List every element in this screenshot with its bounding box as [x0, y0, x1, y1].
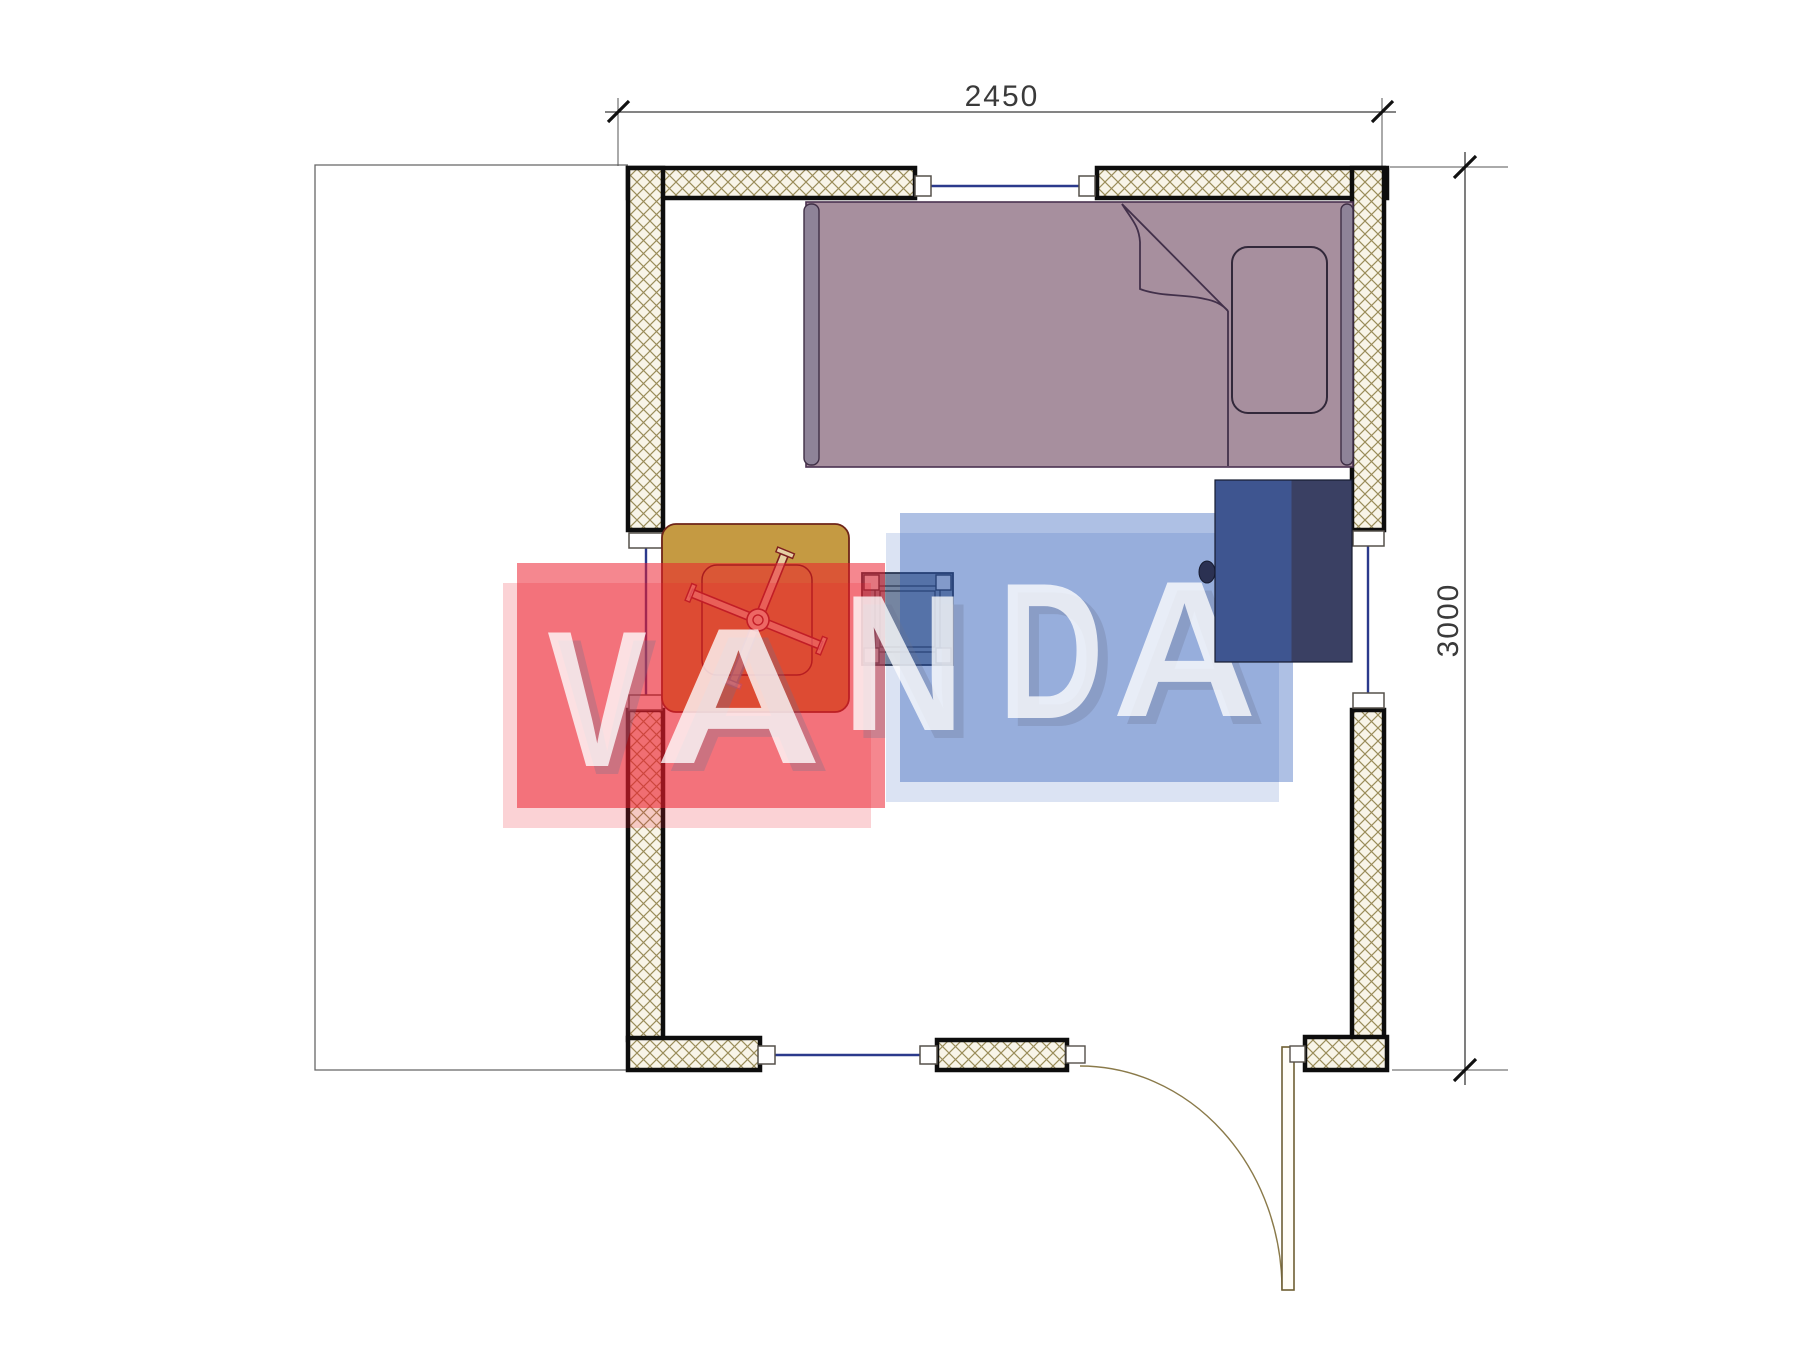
floor-plan-canvas: 2450 3000 [0, 0, 1800, 1350]
window-top [915, 176, 1095, 196]
window-jamb [1353, 531, 1384, 546]
cabinet [1199, 480, 1352, 662]
dimension-top: 2450 [605, 80, 1396, 166]
cabinet-knob [1199, 561, 1215, 583]
window-jamb [629, 533, 662, 548]
window-jamb [1353, 693, 1384, 708]
door-swing-arc [1080, 1066, 1282, 1290]
floor-plan-page: 2450 3000 [0, 0, 1800, 1350]
watermark-letter: A [655, 588, 822, 805]
bed-headboard [804, 204, 819, 465]
window-right [1353, 531, 1384, 708]
door-jamb [1290, 1046, 1305, 1062]
wall-bottom-right-corner [1305, 1037, 1387, 1070]
cabinet-body [1215, 480, 1352, 662]
bed [804, 202, 1353, 467]
door-leaf [1282, 1047, 1294, 1290]
bed-footboard [1341, 204, 1353, 465]
wall-right-lower [1352, 710, 1384, 1038]
window-jamb [1079, 176, 1095, 196]
dimension-right: 3000 [1390, 152, 1508, 1085]
watermark-letter: V [547, 591, 647, 808]
watermark-letter: N [842, 555, 965, 772]
window-jamb [920, 1046, 937, 1064]
door [1066, 1046, 1305, 1290]
wall-left-upper [628, 168, 663, 530]
wall-right-upper [1352, 168, 1384, 530]
pillow [1232, 247, 1327, 413]
dimension-height-value: 3000 [1432, 583, 1465, 658]
window-bottom [758, 1046, 937, 1064]
wall-top-right [1097, 168, 1387, 198]
dimension-width-value: 2450 [965, 80, 1040, 113]
wall-top-left [628, 168, 915, 198]
wall-bottom-left-corner [628, 1038, 760, 1070]
wall-bottom-middle [937, 1040, 1067, 1070]
watermark-letter: D [998, 543, 1104, 760]
window-jamb [758, 1046, 775, 1064]
window-jamb [915, 176, 931, 196]
door-jamb [1066, 1046, 1085, 1063]
